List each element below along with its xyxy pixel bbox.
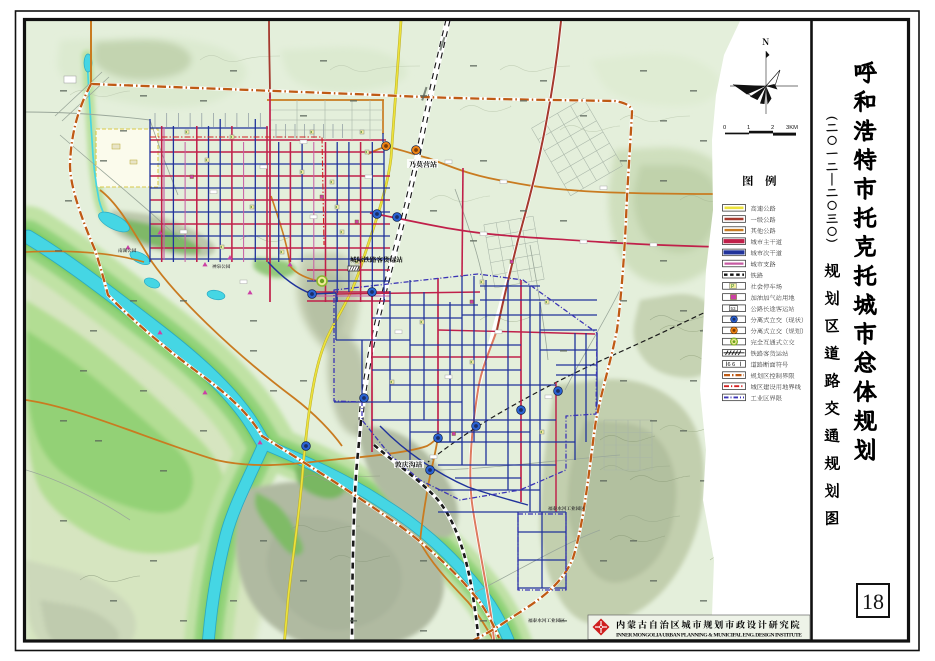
svg-text:2: 2 — [771, 125, 774, 131]
svg-text:18: 18 — [862, 589, 884, 614]
svg-text:INNER MONGOLIA URBAN PLANNING: INNER MONGOLIA URBAN PLANNING & MUNICIPA… — [616, 633, 802, 639]
svg-text:6 6: 6 6 — [728, 362, 736, 368]
svg-text:53: 53 — [731, 306, 737, 311]
svg-text:0: 0 — [723, 125, 726, 131]
svg-text:3KM: 3KM — [786, 125, 798, 131]
svg-text:1: 1 — [747, 125, 750, 131]
